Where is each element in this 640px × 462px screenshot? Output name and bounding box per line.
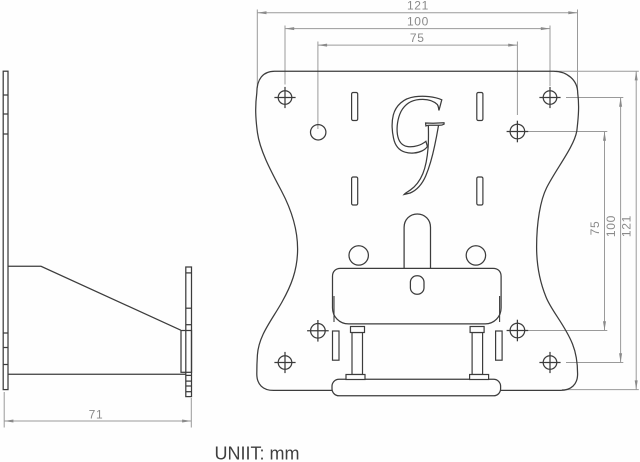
svg-text:75: 75 bbox=[588, 221, 602, 236]
svg-text:100: 100 bbox=[604, 215, 618, 237]
svg-text:71: 71 bbox=[89, 408, 104, 422]
svg-text:121: 121 bbox=[407, 0, 429, 13]
svg-text:75: 75 bbox=[410, 31, 425, 45]
svg-text:121: 121 bbox=[620, 215, 634, 237]
svg-text:100: 100 bbox=[407, 14, 429, 28]
svg-text:UNIIT: mm: UNIIT: mm bbox=[215, 444, 300, 462]
